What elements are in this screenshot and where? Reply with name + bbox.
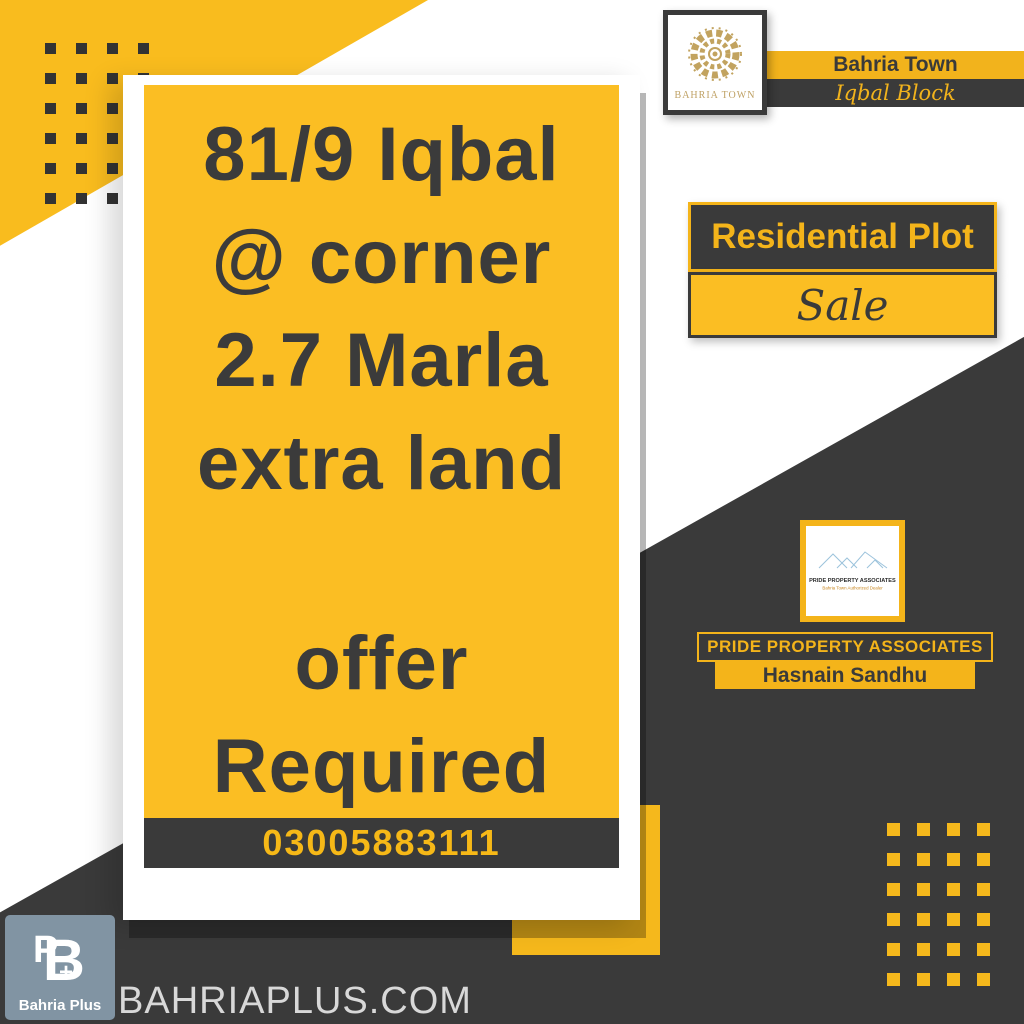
agency-name-bar: PRIDE PROPERTY ASSOCIATES — [697, 632, 993, 662]
bahria-plus-caption: Bahria Plus — [19, 997, 102, 1014]
offer-line: offer — [295, 612, 469, 715]
website-url: BAHRIAPLUS.COM — [118, 980, 472, 1023]
dot-grid-decoration-bottom-right — [887, 823, 990, 986]
phone-number: 03005883111 — [262, 822, 500, 864]
property-type-label: Residential Plot — [711, 217, 974, 257]
monogram-plus: + — [59, 959, 73, 987]
required-line: Required — [213, 715, 550, 818]
property-status-label: Sale — [796, 281, 888, 330]
plot-number-line: 81/9 Iqbal — [203, 103, 559, 206]
listing-card: 81/9 Iqbal @ corner 2.7 Marla extra land… — [123, 75, 640, 920]
agency-logo-box: PRIDE PROPERTY ASSOCIATES Bahria Town Au… — [800, 520, 905, 622]
bahria-plus-monogram-icon: P B + — [29, 933, 91, 997]
agency-name: PRIDE PROPERTY ASSOCIATES — [707, 637, 983, 657]
property-type-box: Residential Plot — [688, 202, 997, 272]
corner-line: @ corner — [212, 206, 552, 309]
mountains-icon — [817, 548, 889, 575]
bahria-plus-logo-box: P B + Bahria Plus — [5, 915, 115, 1020]
phone-bar: 03005883111 — [144, 818, 619, 868]
agent-name: Hasnain Sandhu — [763, 664, 928, 688]
block-name: Iqbal Block — [835, 81, 955, 105]
property-status-box: Sale — [688, 272, 997, 338]
listing-card-body: 81/9 Iqbal @ corner 2.7 Marla extra land… — [144, 85, 619, 818]
bahria-town-logo-box: BAHRIA TOWN — [663, 10, 767, 115]
size-line: 2.7 Marla — [214, 309, 548, 412]
block-name-bar: Iqbal Block — [767, 79, 1024, 107]
agency-logo-title: PRIDE PROPERTY ASSOCIATES — [809, 577, 896, 583]
agency-logo-subtitle: Bahria Town Authorized Dealer — [822, 586, 882, 591]
project-name-bar: Bahria Town — [767, 51, 1024, 79]
bahria-town-logo-caption: BAHRIA TOWN — [675, 90, 756, 101]
bahria-town-emblem-icon — [686, 25, 744, 88]
agent-name-bar: Hasnain Sandhu — [715, 662, 975, 689]
extra-land-line: extra land — [197, 412, 566, 515]
flyer-canvas: 81/9 Iqbal @ corner 2.7 Marla extra land… — [0, 0, 1024, 1024]
project-name: Bahria Town — [833, 53, 957, 77]
